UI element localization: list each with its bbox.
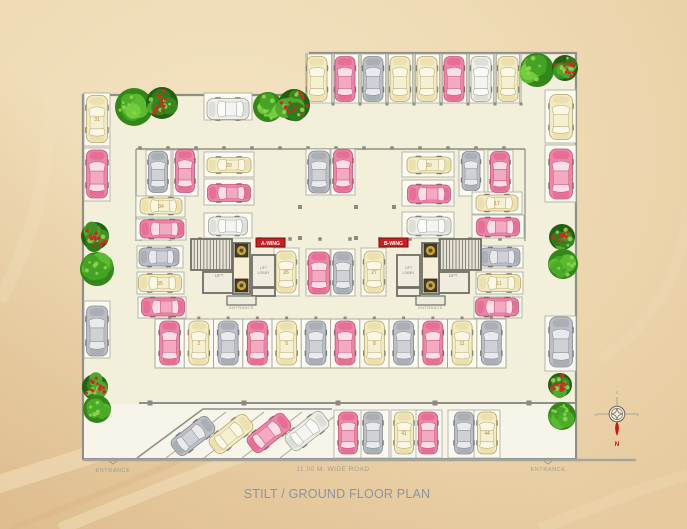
svg-text:11.00 M. WIDE ROAD: 11.00 M. WIDE ROAD (296, 466, 369, 473)
svg-text:STILT / GROUND FLOOR PLAN: STILT / GROUND FLOOR PLAN (244, 487, 431, 501)
svg-text:5: 5 (285, 341, 288, 347)
svg-text:B-WING: B-WING (384, 241, 403, 247)
svg-text:35: 35 (157, 281, 163, 287)
svg-text:LIFT: LIFT (405, 266, 413, 270)
svg-text:17: 17 (494, 201, 500, 207)
svg-text:31: 31 (94, 117, 100, 123)
svg-text:A-WING: A-WING (261, 241, 280, 247)
svg-text:N: N (615, 441, 620, 448)
svg-text:34: 34 (158, 204, 164, 210)
svg-text:41: 41 (401, 431, 407, 437)
svg-text:ENTRANCE: ENTRANCE (95, 468, 130, 474)
svg-text:11: 11 (496, 281, 501, 287)
svg-text:ENTRANCE: ENTRANCE (229, 305, 253, 310)
svg-text:27: 27 (371, 270, 377, 276)
svg-text:8: 8 (373, 341, 376, 347)
svg-text:44: 44 (484, 431, 490, 437)
svg-text:2: 2 (197, 341, 200, 347)
svg-text:ENTRANCE: ENTRANCE (418, 305, 442, 310)
svg-text:26: 26 (283, 270, 289, 276)
svg-text:W: W (594, 412, 598, 417)
svg-text:20: 20 (426, 163, 432, 169)
svg-text:LIFT: LIFT (260, 266, 268, 270)
svg-text:E: E (637, 412, 640, 417)
svg-text:LIFT: LIFT (215, 273, 224, 278)
svg-text:ENTRANCE: ENTRANCE (530, 467, 565, 473)
svg-text:LOBBY: LOBBY (403, 271, 416, 275)
svg-text:LOBBY: LOBBY (258, 271, 271, 275)
svg-text:LIFT: LIFT (449, 273, 458, 278)
svg-text:11: 11 (459, 341, 464, 347)
svg-text:20: 20 (226, 163, 232, 169)
svg-text:S: S (616, 390, 619, 395)
